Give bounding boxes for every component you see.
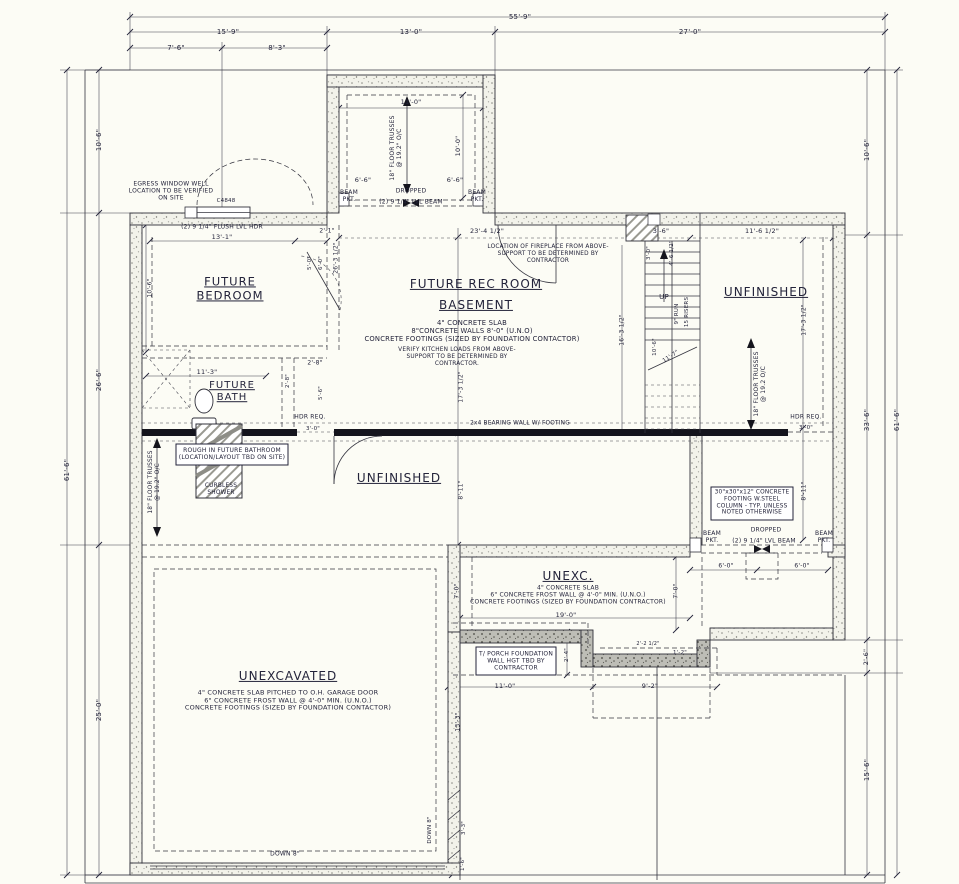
beam-pkt-ne: BEAM PKT. <box>468 189 486 203</box>
dim-9-2: 9'-2" <box>642 683 658 691</box>
beam-unexc: (2) 9 1/4" LVL BEAM <box>732 537 795 544</box>
dim-6-0-a: 6'-0" <box>718 562 733 569</box>
note-footing: 30"x30"x12" CONCRETE FOOTING W.STEEL COL… <box>715 489 790 516</box>
egress-note: EGRESS WINDOW WELL LOCATION TO BE VERIFI… <box>129 180 213 201</box>
dim-2-1: 2'-1" <box>319 227 334 234</box>
down-8-side: DOWN 8" <box>427 816 433 843</box>
room-unfinished-ne: UNFINISHED <box>724 285 808 299</box>
note-kitchen: VERIFY KITCHEN LOADS FROM ABOVE- SUPPORT… <box>398 347 516 367</box>
dim-10-0-bump: 10'-0" <box>455 136 463 157</box>
truss-note-right: 18" FLOOR TRUSSES @ 19.2 O/C <box>753 351 767 416</box>
beam-pkt-se: BEAM PKT. <box>815 530 833 544</box>
dim-3-6: 3'-6" <box>653 228 669 236</box>
dropped-bump: DROPPED <box>396 187 427 194</box>
dim-25-0-left: 25'-0" <box>95 699 103 721</box>
dim-10-6-right: 10'-6" <box>863 139 871 161</box>
dim-2-8-a: 2'-8" <box>307 359 322 366</box>
dim-17-3-right: 17'-3 1/2" <box>800 304 807 336</box>
dim-16-3-half: 16'-3 1/2" <box>618 314 625 346</box>
note-unexc: 4" CONCRETE SLAB 6" CONCRETE FROST WALL … <box>470 584 666 605</box>
hdr-right: HDR REQ. <box>790 413 821 420</box>
dim-13-1: 13'-1" <box>212 234 233 242</box>
dim-7-0-b: 7'-0" <box>672 583 679 598</box>
dim-11-6-half: 11'-6 1/2" <box>745 228 779 236</box>
room-unexc: UNEXC. <box>543 569 594 583</box>
dim-2-6-right: 2'-6" <box>863 649 871 665</box>
dim-33-6-right: 33'-6" <box>863 409 871 431</box>
dim-10-6-left: 10'-6" <box>95 129 103 151</box>
truss-note-left: 18" FLOOR TRUSSES @ 19.2" O/C <box>148 450 162 513</box>
dim-8-3: 8'-3" <box>268 44 286 52</box>
dim-3-0-fire: 3'-0" <box>646 246 652 260</box>
dim-5-0: 5'-0" <box>307 256 313 270</box>
plan-labels-layer: 55'-9"15'-9"13'-0"27'-0"7'-6"8'-3"61'-6"… <box>0 0 959 884</box>
stairs-run: 9" RUN <box>674 304 680 325</box>
dim-6-6-a: 6'-6" <box>355 177 371 185</box>
dim-10-6-stair: 10'-6" <box>652 338 658 356</box>
dim-11-7: 11'-7" <box>662 349 680 364</box>
dim-6-0: 6'-0" <box>318 256 324 270</box>
dim-23-4-half: 23'-4 1/2" <box>470 228 504 236</box>
dim-13-3: 13'-3" <box>454 712 461 731</box>
dropped-unexc: DROPPED <box>751 526 782 533</box>
dim-6-0-b: 6'-0" <box>794 562 809 569</box>
dim-2-8-b: 2'-8" <box>285 374 291 388</box>
dim-3-0-right: 3'-0" <box>799 425 813 431</box>
dim-13-0: 13'-0" <box>400 28 422 36</box>
dim-3-0-left: 3'-0" <box>306 426 320 432</box>
dim-26-6-left: 26'-6" <box>95 369 103 391</box>
dim-15-9: 15'-9" <box>217 28 239 36</box>
note-basement: 4" CONCRETE SLAB 8"CONCRETE WALLS 8'-0" … <box>364 319 579 343</box>
dim-8-11-mid: 8'-11" <box>457 480 464 499</box>
room-basement: BASEMENT <box>439 298 513 312</box>
room-bedroom: FUTURE BEDROOM <box>196 275 263 302</box>
dim-1-6: 1'-6" <box>460 857 466 871</box>
dim-3-3: 3'-3" <box>461 821 467 835</box>
dim-61-6-left: 61'-6" <box>63 459 71 481</box>
dim-15-6-right: 15'-6" <box>863 759 871 781</box>
hdr-left: HDR REQ. <box>294 413 325 420</box>
dim-7-0-a: 7'-0" <box>453 583 460 598</box>
dim-7-6: 7'-6" <box>167 44 185 52</box>
dim-17-3-mid: 17'-3 1/2" <box>457 371 464 403</box>
note-roughin: ROUGH IN FUTURE BATHROOM (LOCATION/LAYOU… <box>179 447 285 461</box>
dim-26-3-half: 26'-3 1/2" <box>332 242 339 274</box>
dim-61-6-right: 61'-6" <box>893 409 901 431</box>
room-bath: FUTURE BATH <box>209 380 255 404</box>
note-garage: 4" CONCRETE SLAB PITCHED TO O.H. GARAGE … <box>185 690 391 713</box>
dim-55-9: 55'-9" <box>509 13 531 21</box>
beam-bump: (2) 9 1/4" LVL BEAM <box>379 198 442 205</box>
hdr-bedroom: (2) 9 1/4" FLUSH LVL HDR <box>181 223 263 230</box>
dim-1-2: 1'-2" <box>673 650 687 656</box>
beam-pkt-sw: BEAM PKT. <box>703 530 721 544</box>
note-curbless: CURBLESS SHOWER <box>205 483 237 497</box>
floor-plan-page: 55'-9"15'-9"13'-0"27'-0"7'-6"8'-3"61'-6"… <box>0 0 959 884</box>
stairs-up: UP <box>659 293 669 301</box>
note-bearing-wall: 2x4 BEARING WALL W/ FOOTING <box>470 421 570 428</box>
down-8-bottom: DOWN 8" <box>270 850 300 857</box>
dim-2-4: 2'-4" <box>564 648 570 662</box>
dim-2-2-half: 2'-2 1/2" <box>636 642 659 648</box>
dim-4-6-half: 4'-6 1/2" <box>669 240 675 265</box>
room-unfinished-mid: UNFINISHED <box>357 471 441 485</box>
window-label: C4848 <box>217 198 236 204</box>
dim-27-0: 27'-0" <box>679 28 701 36</box>
beam-pkt-nw: BEAM PKT. <box>340 189 358 203</box>
room-recroom: FUTURE REC ROOM <box>410 277 542 291</box>
dim-10-6-bed: 10'-6" <box>146 278 153 297</box>
dim-6-6-b: 6'-6" <box>447 177 463 185</box>
note-fireplace: LOCATION OF FIREPLACE FROM ABOVE- SUPPOR… <box>487 244 608 264</box>
note-porch: T/ PORCH FOUNDATION WALL HGT TBD BY CONT… <box>479 650 553 671</box>
dim-19-0: 19'-0" <box>556 612 577 620</box>
stairs-risers: 15 RISERS <box>684 297 690 327</box>
truss-note-bump: 18" FLOOR TRUSSES @ 19.2" O/C <box>389 115 403 180</box>
dim-11-0-bump: 11'-0" <box>401 99 422 107</box>
dim-5-6: 5'-6" <box>318 386 324 400</box>
dim-11-0-porch: 11'-0" <box>495 683 516 691</box>
dim-8-11-right: 8'-11" <box>800 481 807 500</box>
dim-11-3: 11'-3" <box>197 369 218 377</box>
room-unexcavated: UNEXCAVATED <box>239 669 337 683</box>
